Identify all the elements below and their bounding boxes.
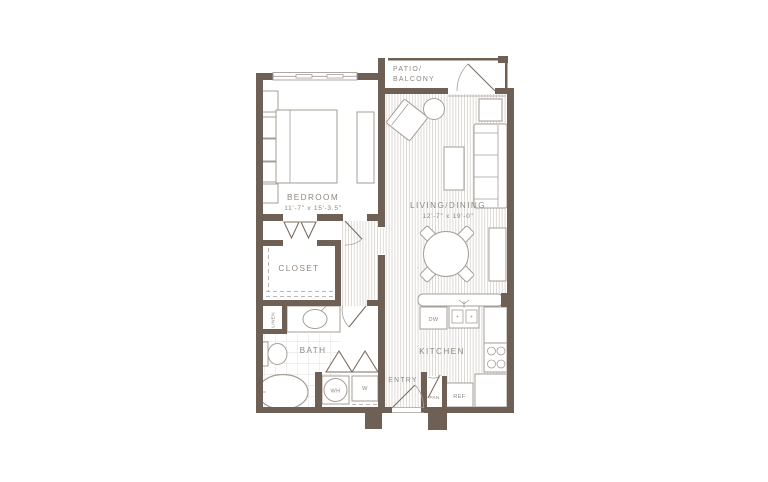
patio-living-wall-cap xyxy=(495,88,514,94)
dining-set xyxy=(419,225,474,282)
utility-left-wall xyxy=(315,372,322,413)
closet-label: CLOSET xyxy=(278,264,319,273)
bed xyxy=(262,110,337,183)
living-dining-dimensions: 12'-7" x 19'-0" xyxy=(422,213,473,220)
bedroom-bottom-wall xyxy=(256,214,283,221)
console-table xyxy=(489,228,506,281)
coffee-table xyxy=(444,147,464,190)
stove xyxy=(484,343,507,372)
bathtub xyxy=(258,375,308,410)
kitchen-counter-bottom xyxy=(475,374,507,407)
floor-plan: PATIO/ BALCONY BEDROOM 11'-7" x 15'-3.5"… xyxy=(0,0,768,482)
exterior-wall-right xyxy=(507,88,514,413)
bedroom-window xyxy=(273,73,357,81)
pillar xyxy=(428,413,447,430)
bath-top-wall-stub xyxy=(367,300,378,306)
dining-table xyxy=(424,232,469,277)
patio-top-wall xyxy=(388,58,508,61)
linen-label: LINEN xyxy=(271,312,277,328)
side-table xyxy=(424,99,445,120)
closet-top-wall xyxy=(256,240,283,246)
bedroom-top-wall xyxy=(256,73,273,80)
closet-right-wall xyxy=(335,240,341,306)
patio-living-wall xyxy=(378,88,448,94)
bedroom-bottom-wall xyxy=(317,214,343,221)
living-dining-label: LIVING/DINING xyxy=(410,201,486,210)
closet-bifold-doors xyxy=(284,222,316,238)
sofa xyxy=(474,124,507,208)
bath-door-swing xyxy=(342,306,366,327)
bath-top-wall xyxy=(256,300,341,306)
counter-wall-return xyxy=(501,293,514,307)
dresser xyxy=(357,112,374,183)
bottom-wall-left xyxy=(256,407,392,413)
pantry-interior xyxy=(427,376,442,407)
linen-bottom-wall xyxy=(263,329,282,334)
linen-right-wall xyxy=(282,306,287,334)
pillow xyxy=(262,117,276,138)
bedroom-dimensions: 11'-7" x 15'-3.5" xyxy=(284,205,341,212)
bedroom-bottom-wall xyxy=(367,214,378,221)
kitchen-counter-bar xyxy=(418,294,503,306)
entry-label: ENTRY xyxy=(388,377,418,384)
water-heater-label: WH xyxy=(330,389,340,395)
vanity-sink xyxy=(303,310,327,329)
patio-label-line2: BALCONY xyxy=(393,76,435,83)
hallway-floor-hatch xyxy=(341,221,378,306)
bath-label: BATH xyxy=(300,346,327,355)
hallway-opening-hatch xyxy=(378,228,385,254)
dishwasher-label: DW xyxy=(428,317,438,323)
refrigerator-label: REF xyxy=(453,394,466,400)
kitchen-label: KITCHEN xyxy=(419,347,465,356)
pantry-left-wall xyxy=(421,372,427,413)
pillow xyxy=(262,162,276,182)
bedroom-label: BEDROOM xyxy=(287,193,339,202)
bottom-wall-right xyxy=(424,407,514,413)
divider-wall-lower xyxy=(378,255,385,413)
patio-label-line1: PATIO/ xyxy=(393,66,422,73)
pillar xyxy=(365,413,382,429)
bedroom-furniture xyxy=(261,91,374,203)
nightstand xyxy=(261,91,278,112)
end-table xyxy=(479,99,502,121)
washer-label: W xyxy=(362,386,368,392)
pantry-label: PAN xyxy=(429,395,440,401)
pillow xyxy=(262,139,276,161)
patio-right-wall xyxy=(505,58,508,89)
kitchen-counter-right xyxy=(484,307,507,343)
floor-plan-page: PATIO/ BALCONY BEDROOM 11'-7" x 15'-3.5"… xyxy=(0,0,768,482)
nightstand xyxy=(261,184,278,203)
divider-wall-upper xyxy=(378,58,385,227)
pantry-right-wall xyxy=(442,376,447,413)
